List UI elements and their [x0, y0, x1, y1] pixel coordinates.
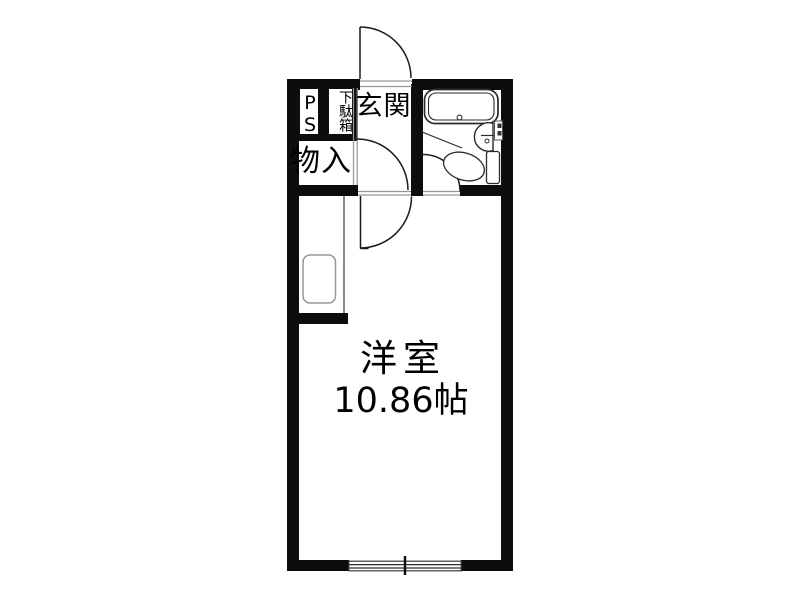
doors: [357, 27, 460, 249]
bathroom-threshold: [423, 192, 460, 196]
wall-storage-bottom: [287, 185, 358, 196]
floorplan-drawing: [0, 0, 800, 600]
wall-bathroom-bottom: [460, 185, 513, 196]
kitchen-sink-icon: [303, 255, 336, 303]
room-size-label: 10.86帖: [315, 383, 487, 420]
toilet-tank: [487, 152, 500, 184]
window-icon: [348, 556, 462, 575]
wall-top-right: [412, 79, 513, 90]
wall-kitchen-stub: [287, 313, 348, 324]
genkan-door-swing-icon: [357, 139, 408, 190]
sink-icon: [474, 123, 494, 151]
wall-right: [501, 79, 513, 571]
sink-basin: [474, 123, 493, 151]
wall-bottom-right: [462, 560, 513, 571]
toilet-bowl: [440, 147, 488, 186]
water-heater-icon: [495, 121, 503, 140]
entrance-threshold: [360, 81, 412, 87]
vanity-counter-line: [422, 132, 462, 148]
sink-drain: [485, 139, 489, 143]
water-heater-knob-bottom: [498, 131, 502, 136]
wall-bottom-left: [287, 560, 348, 571]
water-heater-knob-top: [498, 124, 502, 129]
floorplan-canvas: PS 下駄箱 玄関 物入 洋室 10.86帖: [0, 0, 800, 600]
bathtub-drain-icon: [457, 115, 462, 120]
storage-label: 物入: [288, 146, 354, 178]
room-door-leaf: [361, 196, 369, 249]
room-door-threshold: [358, 192, 411, 196]
shoe-cabinet-label: 下駄箱: [329, 90, 352, 136]
entrance-label: 玄関: [355, 93, 412, 121]
ps-label: PS: [297, 92, 319, 136]
bathroom-fixtures: [422, 90, 503, 186]
entrance-door-swing-icon: [360, 27, 411, 78]
room-name-label: 洋室: [317, 340, 483, 379]
room-door-swing-icon: [360, 197, 412, 249]
wall-bathroom-left: [411, 84, 423, 196]
toilet-icon: [440, 147, 500, 186]
